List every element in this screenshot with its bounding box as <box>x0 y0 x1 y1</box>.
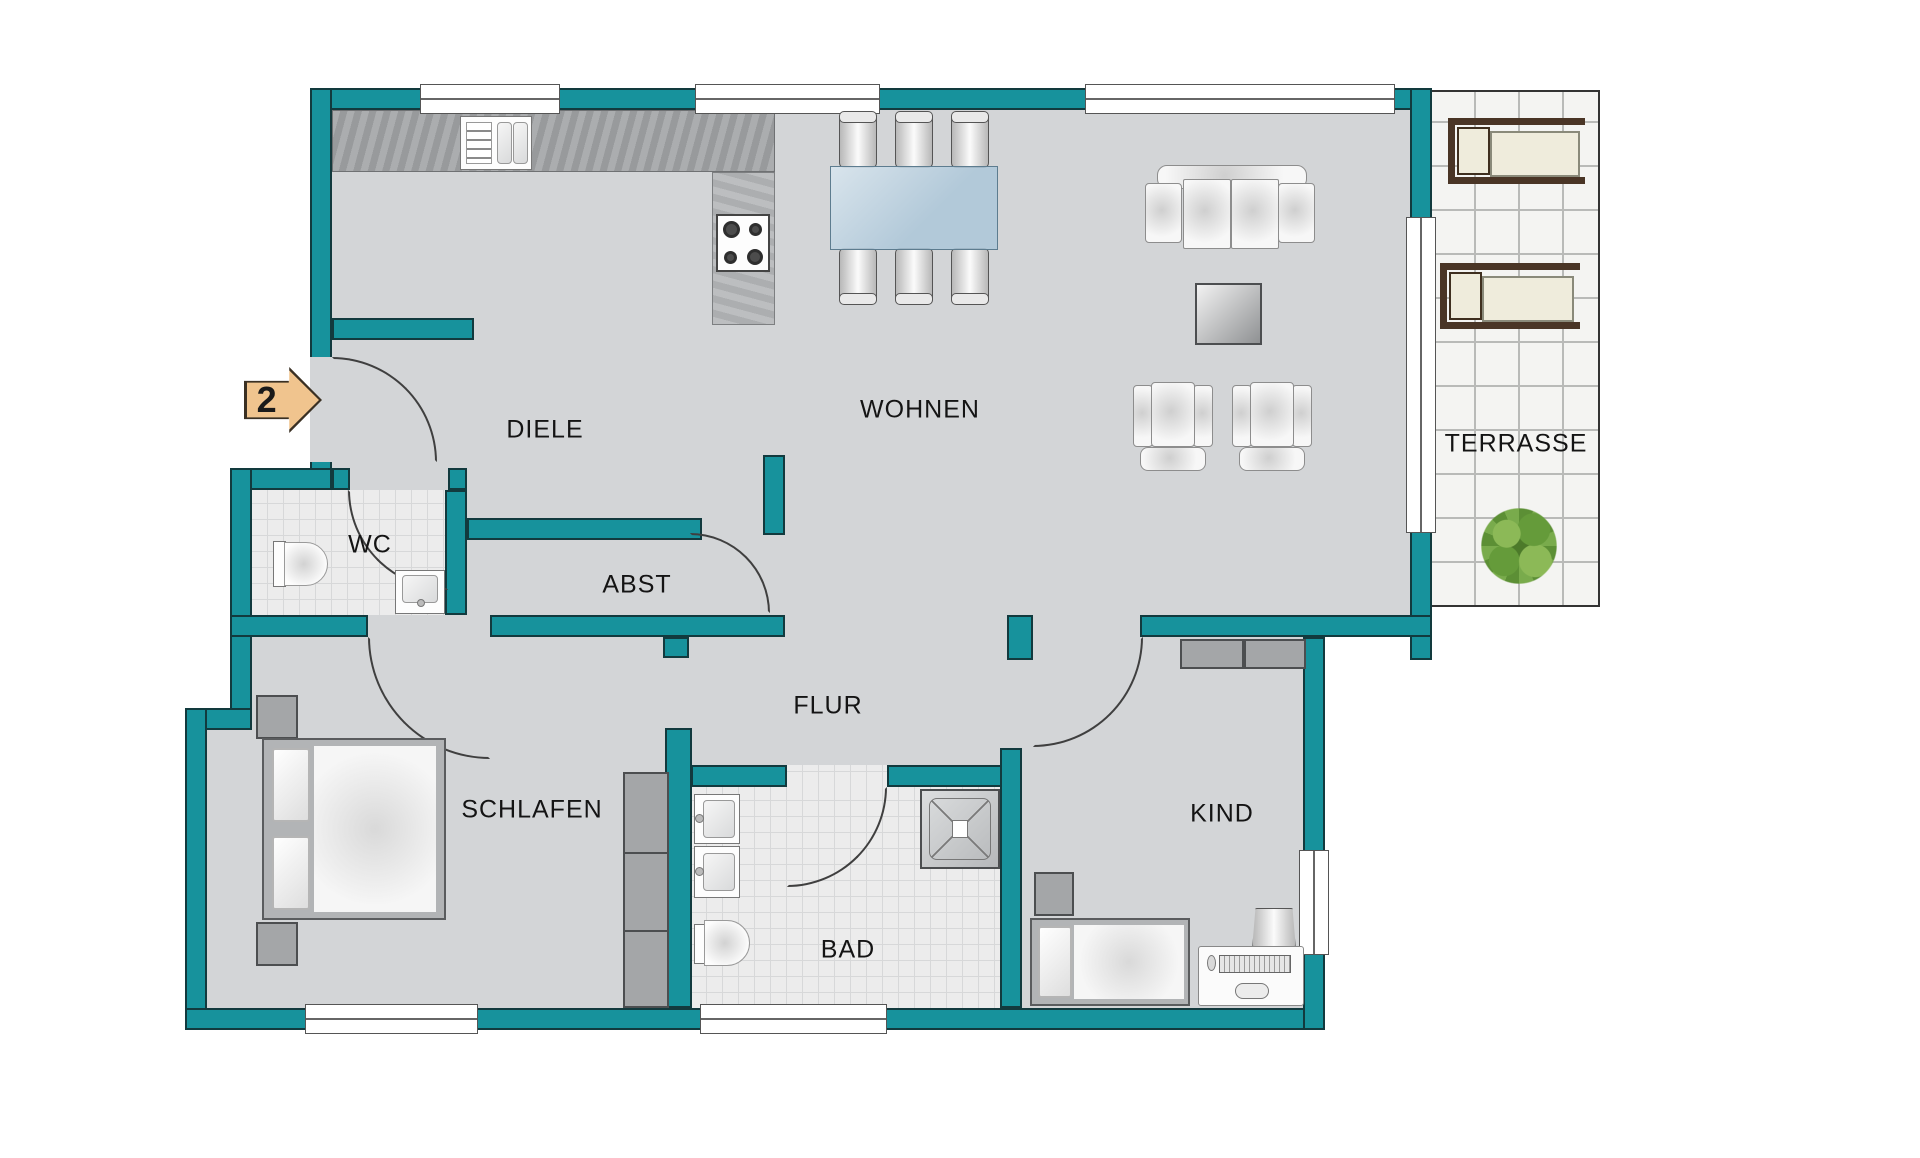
shower-drain <box>952 820 968 838</box>
outside-area <box>0 468 230 708</box>
armchair-arm <box>1292 385 1312 447</box>
wc-sink <box>395 570 445 614</box>
bad-sink-basin <box>703 800 735 838</box>
bed-pillow <box>272 836 310 910</box>
armchair-arm <box>1232 385 1252 447</box>
dining-chair <box>951 248 989 304</box>
wc-faucet <box>417 599 425 607</box>
wall <box>691 765 787 787</box>
room-label-terrasse: TERRASSE <box>1445 430 1588 459</box>
room-label-flur: FLUR <box>793 692 862 721</box>
burner <box>747 249 763 265</box>
lounger-frame-bar <box>1448 118 1455 184</box>
burner <box>749 223 762 236</box>
wall <box>445 490 467 615</box>
wall <box>763 455 785 535</box>
terrace-door-window <box>1406 217 1436 533</box>
wall <box>663 637 689 658</box>
nightstand <box>256 695 298 739</box>
wall <box>332 318 474 340</box>
window <box>1299 850 1329 955</box>
dining-chair <box>895 112 933 168</box>
wall <box>1007 615 1033 660</box>
bad-faucet <box>695 867 704 876</box>
lounger-frame-bar <box>1440 263 1447 329</box>
wall <box>490 615 785 637</box>
keyboard <box>1219 955 1291 973</box>
wall <box>1303 637 1325 1030</box>
bad-sink <box>694 846 740 898</box>
mouse <box>1235 983 1269 999</box>
dining-table <box>830 166 998 250</box>
dining-chair <box>895 248 933 304</box>
room-label-bad: BAD <box>821 936 875 965</box>
kitchen-sink <box>460 116 532 170</box>
armchair-back <box>1140 447 1206 471</box>
sink-basin <box>497 122 512 164</box>
room-label-diele: DIELE <box>506 416 583 445</box>
sideboard <box>1244 639 1306 669</box>
outside-area <box>1325 637 1920 1158</box>
window <box>1085 84 1395 114</box>
sofa-cushion <box>1231 179 1279 249</box>
kitchen-counter <box>332 110 775 172</box>
wall <box>185 708 207 1030</box>
wc-toilet-bowl <box>284 542 328 586</box>
lounger-cushion <box>1482 276 1574 322</box>
room-label-abst: ABST <box>602 571 671 600</box>
dining-chair <box>951 112 989 168</box>
sideboard <box>1180 639 1244 669</box>
window <box>700 1004 887 1034</box>
sofa-armrest <box>1145 183 1182 243</box>
bed-mattress <box>314 746 436 912</box>
window <box>695 84 880 114</box>
dish-rack <box>466 122 492 164</box>
window <box>305 1004 478 1034</box>
wall <box>1140 615 1432 637</box>
plant <box>1478 505 1560 587</box>
bad-sink <box>694 794 740 844</box>
desk-lamp <box>1207 955 1216 971</box>
dining-chair <box>839 112 877 168</box>
lounger <box>1440 263 1580 329</box>
coffee-table <box>1195 283 1262 345</box>
nightstand <box>256 922 298 966</box>
wall <box>230 615 368 637</box>
burner <box>723 221 740 238</box>
wall <box>332 468 350 490</box>
bad-faucet <box>695 814 704 823</box>
lounger-frame-bar <box>1440 322 1580 329</box>
armchair-back <box>1239 447 1305 471</box>
armchair-seat <box>1151 382 1195 447</box>
room-label-wohnen: WOHNEN <box>860 396 980 425</box>
wall <box>1000 748 1022 1008</box>
room-label-schlafen: SCHLAFEN <box>461 796 602 825</box>
desk-chair <box>1252 908 1296 950</box>
armchair-seat <box>1250 382 1294 447</box>
room-label-wc: WC <box>348 531 392 560</box>
sink-basin <box>513 122 528 164</box>
lounger-frame-bar <box>1448 177 1585 184</box>
nightstand <box>1034 872 1074 916</box>
lounger-frame-bar <box>1440 263 1580 270</box>
lounger <box>1448 118 1585 184</box>
dining-chair <box>839 248 877 304</box>
room-label-kind: KIND <box>1190 800 1254 829</box>
wall <box>665 728 692 1008</box>
wall <box>467 518 702 540</box>
lounger-cushion <box>1490 131 1580 177</box>
floor-schlafen-west <box>200 730 260 1008</box>
bad-toilet-bowl <box>704 920 750 966</box>
sofa-cushion <box>1183 179 1231 249</box>
wc-door-opening <box>350 468 448 490</box>
bed-pillow <box>272 748 310 822</box>
bad-door-threshold <box>787 765 887 787</box>
entry-door-opening <box>310 357 332 462</box>
armchair-arm <box>1193 385 1213 447</box>
lounger-frame-bar <box>1448 118 1585 125</box>
bed-pillow <box>1038 926 1072 998</box>
wardrobe <box>623 772 669 1008</box>
shower <box>920 789 1000 869</box>
double-bed <box>262 738 446 920</box>
desk <box>1198 946 1304 1006</box>
floor-plan: DIELE WOHNEN WC ABST FLUR SCHLAFEN BAD K… <box>0 0 1920 1158</box>
sofa-armrest <box>1278 183 1315 243</box>
window <box>420 84 560 114</box>
single-bed <box>1030 918 1190 1006</box>
lounger-headrest <box>1457 127 1490 175</box>
armchair-arm <box>1133 385 1153 447</box>
burner <box>724 251 737 264</box>
stove <box>716 214 770 272</box>
lounger-headrest <box>1449 272 1482 320</box>
wall <box>230 468 252 730</box>
wall <box>448 468 467 490</box>
bed-mattress <box>1074 925 1184 999</box>
bad-sink-basin <box>703 853 735 891</box>
